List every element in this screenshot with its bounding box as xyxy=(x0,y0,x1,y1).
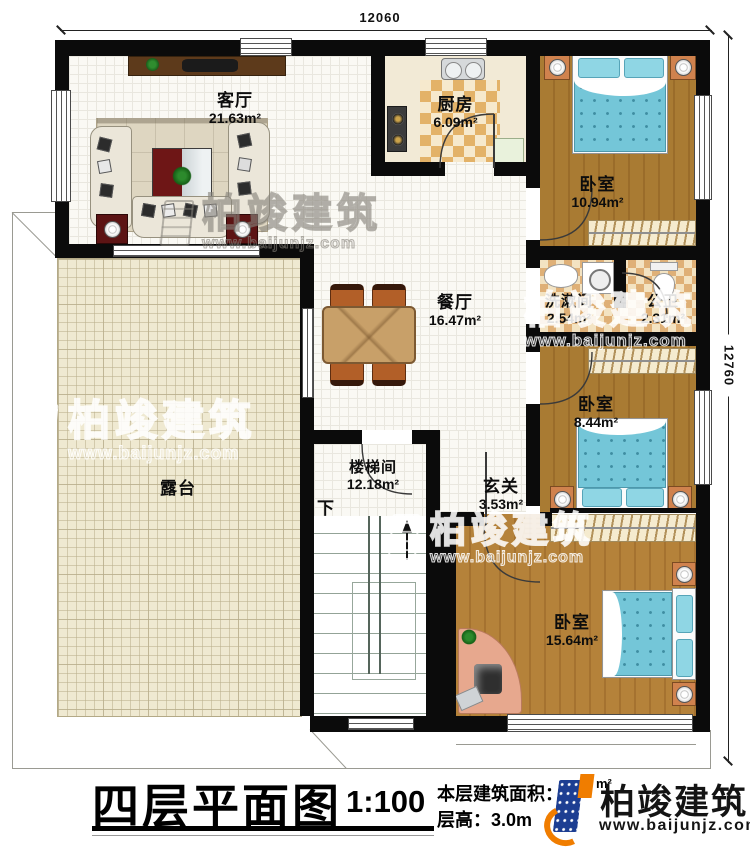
floor-height-value: 3.0m xyxy=(491,810,532,830)
door-arcs-layer xyxy=(0,0,750,850)
dimension-value-top: 12060 xyxy=(330,10,430,25)
room-label-foyer: 玄关 3.53m² xyxy=(466,478,536,512)
dimension-line-top xyxy=(60,30,712,31)
brand-url: www.baijunjz.com xyxy=(599,817,750,835)
room-label-bedroom1: 卧室 10.94m² xyxy=(555,176,640,210)
dimension-value-right: 12760 xyxy=(722,335,737,397)
room-label-dining: 餐厅 16.47m² xyxy=(415,294,495,328)
door-arc xyxy=(484,526,540,582)
room-label-bedroom3: 卧室 15.64m² xyxy=(528,614,616,648)
building-area-label: 本层建筑面积： xyxy=(437,780,563,806)
room-label-bedroom2: 卧室 8.44m² xyxy=(556,396,636,430)
room-label-stairs: 楼梯间 12.18m² xyxy=(328,460,418,492)
floor-plan-page: 客厅 21.63m² 厨房 6.09m² 卧室 10.94m² 餐厅 16.47… xyxy=(0,0,750,850)
room-label-washroom: 洗漱间 2.54m² xyxy=(528,294,610,326)
room-label-kitchen: 厨房 6.09m² xyxy=(413,96,498,130)
room-label-toilet: 公卫 2.31m² xyxy=(628,294,698,326)
room-label-living: 客厅 21.63m² xyxy=(175,92,295,126)
floor-height-label: 层高： xyxy=(437,810,491,830)
stairs-down-label: 下 xyxy=(314,500,338,519)
floor-height-line: 层高：3.0m xyxy=(437,806,532,832)
plan-scale: 1:100 xyxy=(346,784,425,820)
brand-logo-icon-accent xyxy=(578,774,595,798)
room-label-terrace: 露台 xyxy=(138,480,218,499)
dimension-line-right xyxy=(728,36,729,763)
title-underline-thick xyxy=(92,826,434,831)
title-underline-thin xyxy=(92,835,434,836)
